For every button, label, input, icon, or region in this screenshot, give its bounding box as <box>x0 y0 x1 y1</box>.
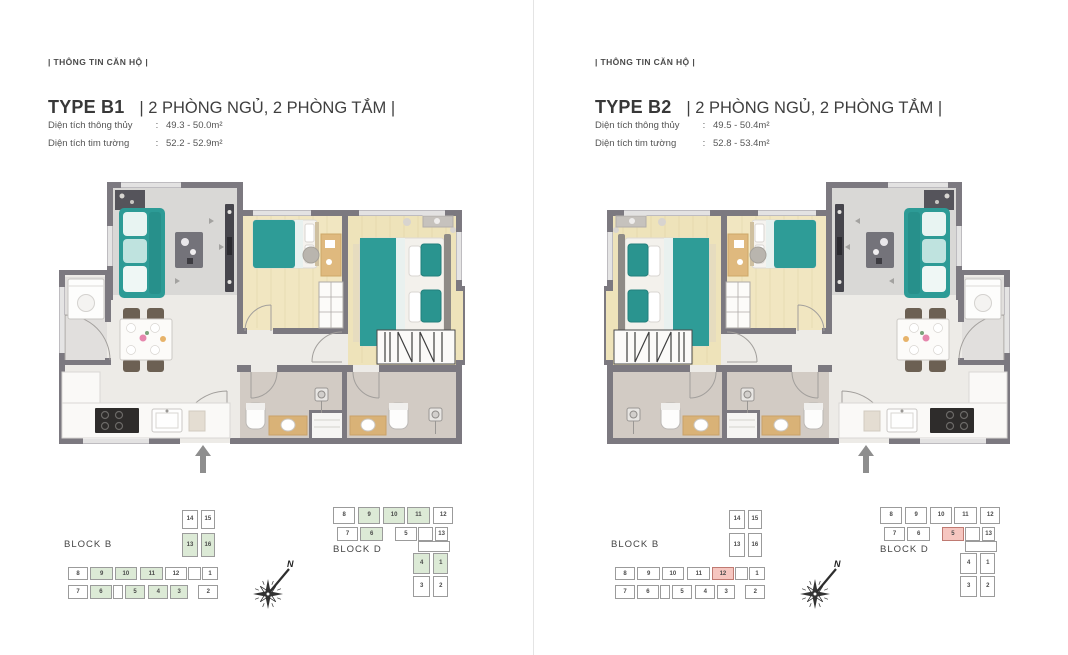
panel-type-b1: | THÔNG TIN CĂN HỘ | TYPE B1 | 2 PHÒNG N… <box>0 0 534 655</box>
unit-cell: 16 <box>201 533 215 557</box>
unit-cell: 4 <box>413 553 430 574</box>
spec-label: Diện tích tim tường <box>595 138 695 149</box>
unit-cell: 6 <box>907 527 930 542</box>
spec-colon: : <box>148 138 166 149</box>
unit-cell: 7 <box>615 585 636 599</box>
unit-cell: 6 <box>360 527 383 542</box>
unit-cell: 15 <box>201 510 215 529</box>
compass-icon: N <box>795 556 843 616</box>
spec-label: Diện tích thông thủy <box>48 120 148 131</box>
unit-cell: 4 <box>960 553 977 574</box>
section-label: | THÔNG TIN CĂN HỘ | <box>48 57 148 67</box>
panel-divider <box>533 0 534 655</box>
unit-cell: 14 <box>182 510 199 529</box>
unit-cell: 9 <box>90 567 113 581</box>
block-b-diagram: BLOCK B 14151316891011121765432 <box>609 506 769 604</box>
unit-cell: 11 <box>140 567 163 581</box>
rooms-label: | 2 PHÒNG NGỦ, 2 PHÒNG TẮM | <box>139 99 395 117</box>
unit-cell: 13 <box>729 533 746 557</box>
unit-cell <box>188 567 201 581</box>
unit-cell: 5 <box>395 527 417 542</box>
unit-cell: 9 <box>905 507 927 524</box>
unit-cell: 1 <box>749 567 766 581</box>
unit-cell: 2 <box>745 585 765 599</box>
unit-cell: 13 <box>982 527 995 542</box>
spec-colon: : <box>695 120 713 131</box>
unit-cell <box>418 527 433 542</box>
spec-row: Diện tích tim tường : 52.8 - 53.4m² <box>595 135 770 153</box>
unit-cell: 1 <box>433 553 448 574</box>
panel-type-b2: | THÔNG TIN CĂN HỘ | TYPE B2 | 2 PHÒNG N… <box>534 0 1068 655</box>
unit-cell: 9 <box>358 507 380 524</box>
unit-cell: 10 <box>383 507 405 524</box>
spec-row: Diện tích thông thủy : 49.3 - 50.0m² <box>48 117 223 135</box>
unit-cell: 12 <box>980 507 1000 524</box>
unit-cell: 5 <box>125 585 145 599</box>
section-label: | THÔNG TIN CĂN HỘ | <box>595 57 695 67</box>
page-title: TYPE B2 | 2 PHÒNG NGỦ, 2 PHÒNG TẮM | <box>595 84 942 121</box>
unit-cell: 15 <box>748 510 762 529</box>
unit-cell: 3 <box>960 576 977 598</box>
floor-plan-b1 <box>57 182 465 477</box>
unit-cell: 11 <box>407 507 430 524</box>
unit-cell: 11 <box>687 567 710 581</box>
area-specs: Diện tích thông thủy : 49.3 - 50.0m² Diệ… <box>48 117 223 152</box>
unit-cell: 3 <box>413 576 430 598</box>
unit-cell: 10 <box>930 507 952 524</box>
compass-north-label: N <box>287 559 294 569</box>
block-d-diagram: BLOCK D 89101112765134132 <box>877 504 1002 602</box>
unit-cell <box>660 585 670 599</box>
unit-cell: 7 <box>337 527 359 542</box>
unit-cell: 3 <box>717 585 735 599</box>
unit-cell: 4 <box>148 585 168 599</box>
unit-cell: 16 <box>748 533 762 557</box>
spec-value: 52.2 - 52.9m² <box>166 138 223 149</box>
unit-cell: 12 <box>165 567 187 581</box>
unit-cell: 3 <box>170 585 188 599</box>
spec-row: Diện tích thông thủy : 49.5 - 50.4m² <box>595 117 770 135</box>
unit-cell: 1 <box>202 567 219 581</box>
block-b-diagram: BLOCK B 14151316891011121765432 <box>62 506 222 604</box>
unit-cell: 13 <box>182 533 199 557</box>
brochure-page: | THÔNG TIN CĂN HỘ | TYPE B1 | 2 PHÒNG N… <box>0 0 1068 655</box>
apartment-type-name: TYPE B1 <box>48 97 124 117</box>
spec-colon: : <box>148 120 166 131</box>
unit-cell: 14 <box>729 510 746 529</box>
unit-cell: 8 <box>615 567 636 581</box>
unit-cell <box>965 541 996 552</box>
unit-cell: 10 <box>115 567 137 581</box>
unit-cell: 2 <box>198 585 218 599</box>
unit-cell: 8 <box>880 507 902 524</box>
unit-cell: 2 <box>433 576 448 598</box>
spec-row: Diện tích tim tường : 52.2 - 52.9m² <box>48 135 223 153</box>
floor-plan-b2 <box>604 182 1012 477</box>
spec-label: Diện tích tim tường <box>48 138 148 149</box>
apartment-type-name: TYPE B2 <box>595 97 671 117</box>
page-title: TYPE B1 | 2 PHÒNG NGỦ, 2 PHÒNG TẮM | <box>48 84 395 121</box>
unit-cell: 6 <box>637 585 659 599</box>
unit-cell: 2 <box>980 576 995 598</box>
unit-cell: 11 <box>954 507 977 524</box>
unit-cell: 12 <box>433 507 453 524</box>
compass-north-label: N <box>834 559 841 569</box>
unit-cell <box>735 567 748 581</box>
unit-cell <box>113 585 123 599</box>
unit-cell: 8 <box>333 507 355 524</box>
spec-label: Diện tích thông thủy <box>595 120 695 131</box>
unit-cell: 7 <box>68 585 89 599</box>
unit-cell: 13 <box>435 527 448 542</box>
unit-cell <box>965 527 980 542</box>
compass-icon: N <box>248 556 296 616</box>
rooms-label: | 2 PHÒNG NGỦ, 2 PHÒNG TẮM | <box>686 99 942 117</box>
spec-value: 49.5 - 50.4m² <box>713 120 770 131</box>
unit-cell: 5 <box>942 527 964 542</box>
spec-colon: : <box>695 138 713 149</box>
unit-cell <box>418 541 449 552</box>
unit-cell: 7 <box>884 527 906 542</box>
unit-cell: 1 <box>980 553 995 574</box>
unit-cell: 9 <box>637 567 660 581</box>
area-specs: Diện tích thông thủy : 49.5 - 50.4m² Diệ… <box>595 117 770 152</box>
unit-cell: 4 <box>695 585 715 599</box>
spec-value: 52.8 - 53.4m² <box>713 138 770 149</box>
unit-cell: 12 <box>712 567 734 581</box>
unit-cell: 6 <box>90 585 112 599</box>
unit-cell: 10 <box>662 567 684 581</box>
unit-cell: 5 <box>672 585 692 599</box>
block-d-diagram: BLOCK D 89101112765134132 <box>330 504 455 602</box>
unit-cell: 8 <box>68 567 89 581</box>
spec-value: 49.3 - 50.0m² <box>166 120 223 131</box>
